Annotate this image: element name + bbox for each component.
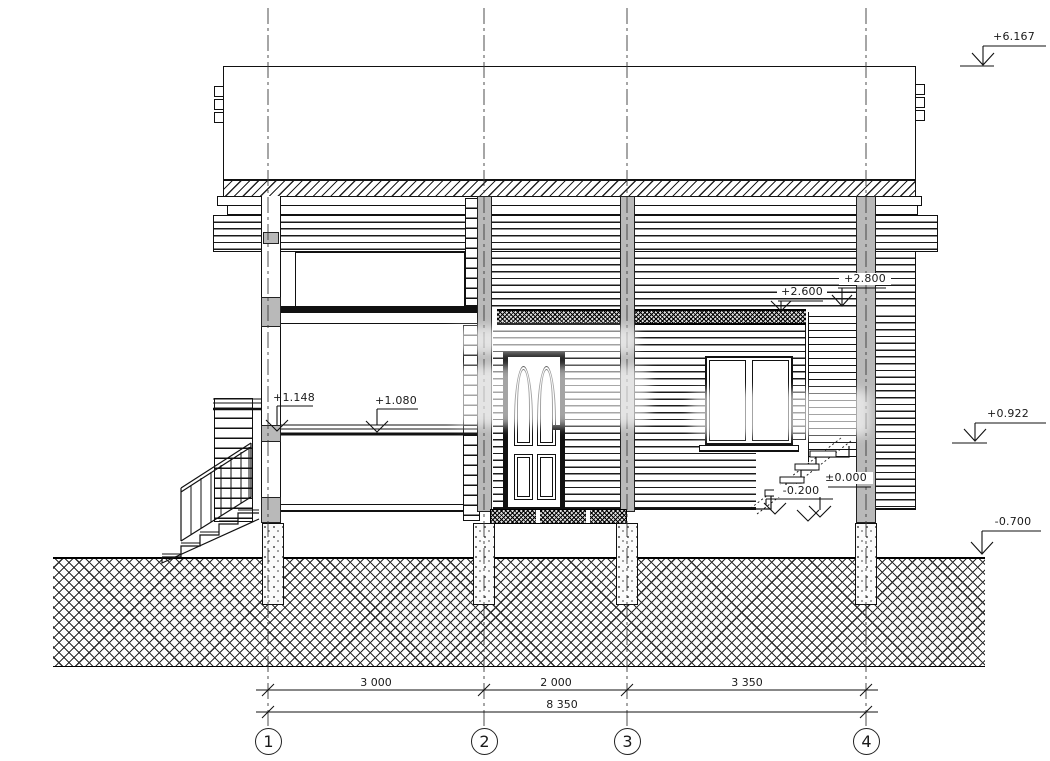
axis-bubble-3: 3	[614, 728, 641, 755]
dim-span-3-4: 3 350	[717, 677, 777, 689]
left-stair-railing	[181, 443, 251, 541]
axis-number: 2	[479, 732, 489, 751]
elevation-drawing: +6.167 +0.922 -0.700 +2.800 +2.600 +1.14…	[0, 0, 1050, 761]
axis-number: 1	[263, 732, 273, 751]
axis-number: 3	[622, 732, 632, 751]
axis-number: 4	[861, 732, 871, 751]
level-canopy-lower: +2.600	[777, 286, 827, 298]
level-roof: +6.167	[984, 31, 1044, 43]
level-entry-step: -0.200	[774, 485, 828, 497]
level-right-mid: +0.922	[978, 408, 1038, 420]
axis-bubble-4: 4	[853, 728, 880, 755]
level-terrace: +1.148	[272, 392, 316, 404]
axis-lines	[268, 8, 866, 727]
floor-lines	[213, 399, 477, 434]
level-ground: -0.700	[984, 516, 1042, 528]
axis-bubble-1: 1	[255, 728, 282, 755]
level-zero: ±0.000	[819, 472, 873, 484]
level-canopy-upper: +2.800	[839, 273, 891, 285]
dim-span-2-3: 2 000	[526, 677, 586, 689]
dim-total: 8 350	[532, 699, 592, 711]
level-floor: +1.080	[372, 395, 420, 407]
linework-overlay	[0, 0, 1050, 761]
level-marks	[266, 46, 1046, 554]
axis-bubble-2: 2	[471, 728, 498, 755]
dim-span-1-2: 3 000	[346, 677, 406, 689]
